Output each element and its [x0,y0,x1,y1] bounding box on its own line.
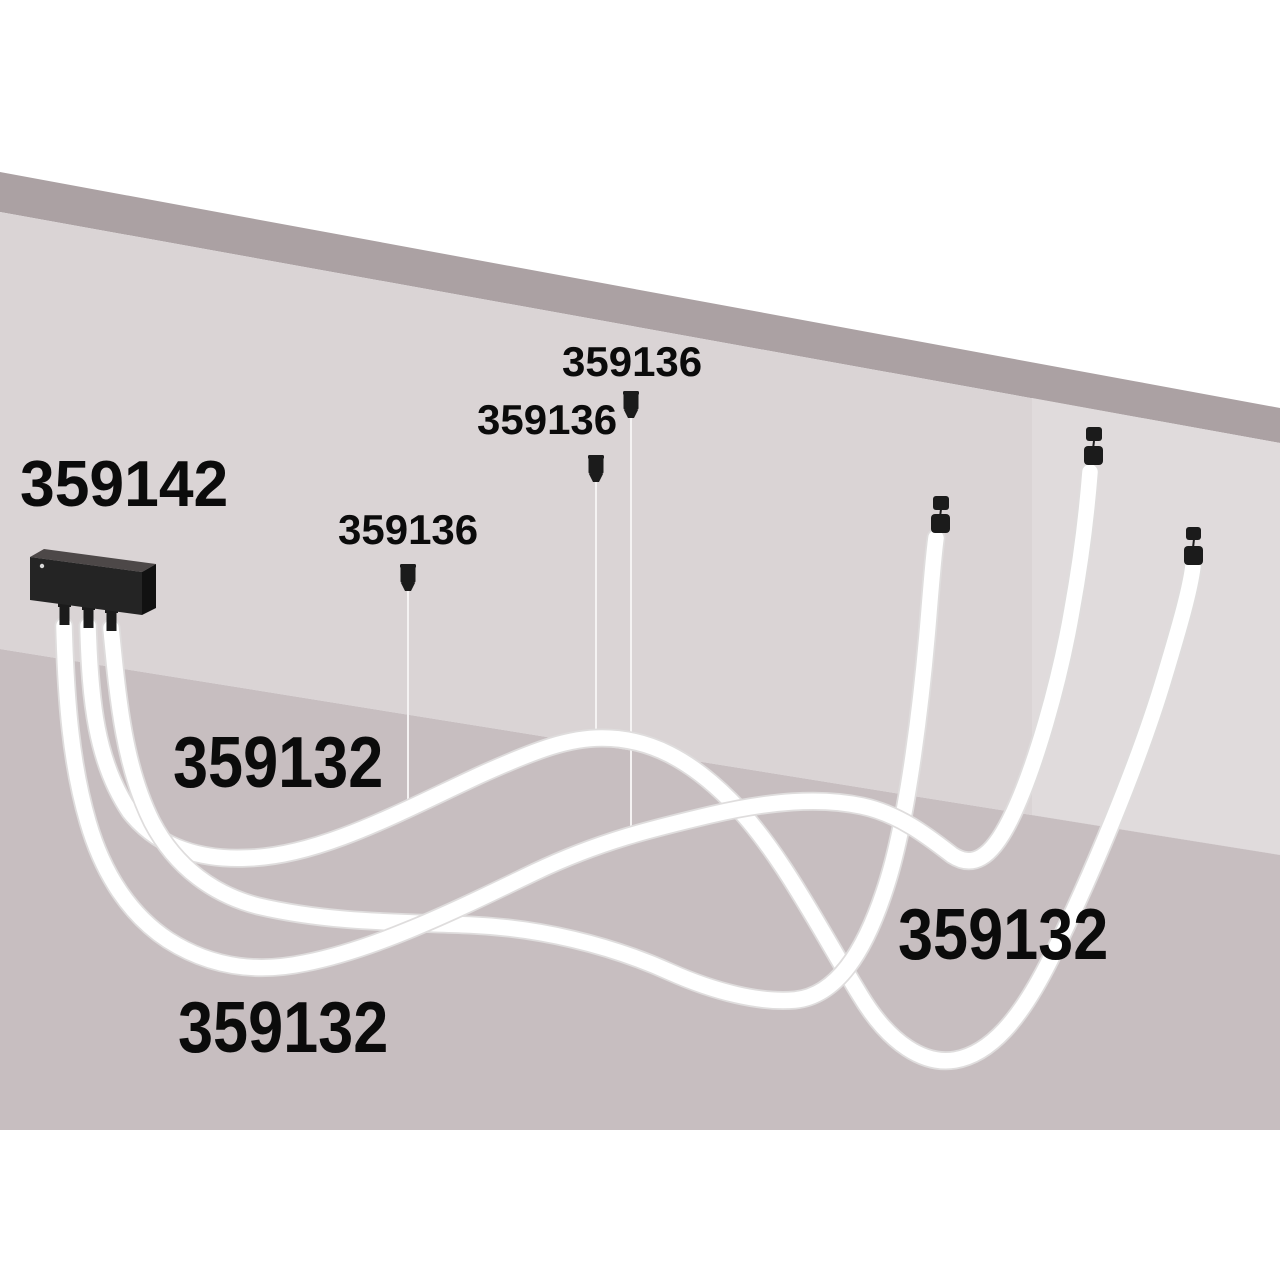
label-tube-code-right: 359132 [898,899,1108,971]
tube-end-fixing-1 [931,496,950,533]
diagram-canvas: 359142 359136 359136 359136 359132 35913… [0,0,1280,1280]
end-knob-3 [1186,527,1201,540]
end-cap-3 [1184,546,1203,565]
label-suspension-code-3: 359136 [562,341,702,383]
label-tube-code-bottom: 359132 [178,992,388,1064]
tube-connector-1 [60,605,70,625]
end-knob-1 [933,496,949,510]
driver-box-side-face [142,564,156,615]
installation-scene [0,0,1280,1280]
tube-connector-2 [84,608,94,628]
end-cap-1 [931,514,950,533]
tube-connector-3 [107,611,117,631]
end-cap-2 [1084,446,1103,465]
end-knob-2 [1086,427,1102,441]
label-suspension-code-1: 359136 [338,509,478,551]
label-tube-code-left: 359132 [173,727,383,799]
label-suspension-code-2: 359136 [477,399,617,441]
driver-indicator-dot [40,564,44,568]
label-driver-code: 359142 [20,451,228,516]
